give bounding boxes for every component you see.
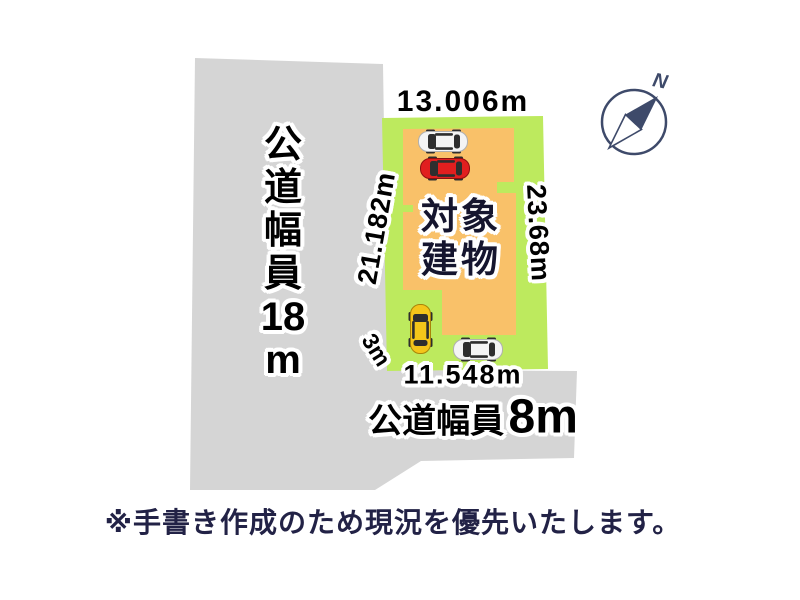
dimension-bottom-width: 11.548m: [403, 360, 522, 391]
dimension-right-depth: 23.68m: [520, 183, 556, 282]
road-label-char: 公: [261, 124, 306, 167]
road-label-8m: 公道幅員 8m: [368, 390, 578, 445]
compass-icon: [602, 90, 666, 154]
car-icon-red: [419, 156, 471, 187]
site-plan-canvas: 13.006m 21.182m 23.68m 3m 11.548m 公 道 幅 …: [0, 0, 800, 600]
car-icon-yellow: [403, 303, 434, 355]
road-label-8m-value: 8m: [509, 391, 578, 444]
road-label-char: 道: [261, 167, 306, 210]
road-label-char: m: [261, 339, 306, 382]
building-label-line2: 建物: [421, 238, 501, 281]
road-label-char: 幅: [261, 210, 306, 253]
disclaimer-text: ※手書き作成のため現況を優先いたします。: [105, 501, 681, 541]
dimension-top-width: 13.006m: [397, 85, 529, 119]
road-label-char: 員: [261, 253, 306, 296]
road-label-char: 18: [261, 296, 306, 339]
building-label: 対象 建物: [421, 195, 501, 281]
building-label-line1: 対象: [421, 195, 501, 238]
road-label-18m: 公 道 幅 員 18 m: [261, 124, 306, 382]
road-label-8m-prefix: 公道幅員: [368, 403, 504, 441]
